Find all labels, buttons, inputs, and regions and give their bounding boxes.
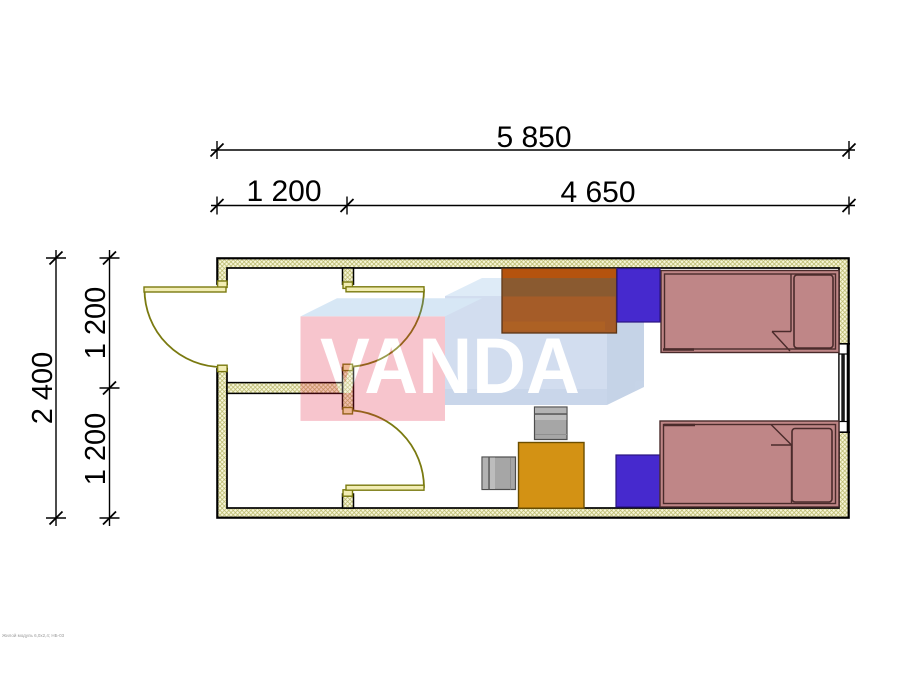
svg-text:VANDA: VANDA	[320, 321, 580, 410]
svg-text:1 200: 1 200	[80, 413, 112, 486]
svg-text:2 400: 2 400	[27, 352, 59, 425]
svg-text:1 200: 1 200	[246, 175, 321, 208]
svg-text:1 200: 1 200	[80, 287, 112, 360]
svg-text:Жилой модуль 6,0х2,4; НБ-03: Жилой модуль 6,0х2,4; НБ-03	[2, 632, 65, 638]
svg-text:5 850: 5 850	[496, 121, 571, 154]
svg-text:4 650: 4 650	[560, 176, 635, 209]
